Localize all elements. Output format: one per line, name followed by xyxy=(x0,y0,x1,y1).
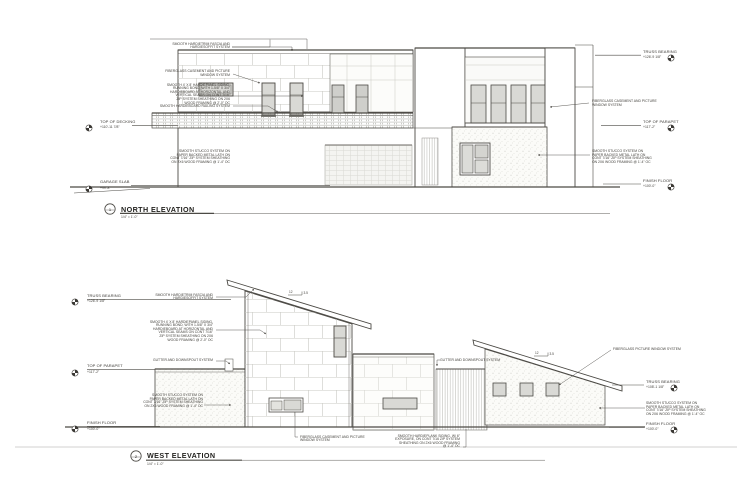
west-main-roof-slope-run: 12 xyxy=(289,290,293,294)
level-datum-icon xyxy=(70,421,80,431)
level-datum-icon xyxy=(669,380,679,390)
north-window-right-note: FIBERGLASS CASEMENT AND PICTURE WINDOW S… xyxy=(592,100,657,107)
north-elevation-title: NORTH ELEVATION xyxy=(121,205,195,214)
north-tower-right xyxy=(545,45,593,187)
level-datum-icon xyxy=(666,50,676,60)
west-main-volume xyxy=(245,291,352,427)
west-truss-bearing-left-elev: +126'-9 1/8" xyxy=(87,300,105,303)
west-finish-floor-left-label: FINISH FLOOR xyxy=(87,421,116,425)
west-mid-section xyxy=(353,354,434,430)
north-truss-bearing-elev: +126'-9 1/8" xyxy=(643,56,661,59)
north-top-of-decking-label: TOP OF DECKING xyxy=(100,120,135,124)
level-datum-icon xyxy=(70,365,80,375)
west-siding-bay xyxy=(436,369,487,430)
west-fascia-note: SMOOTH HARDIETRIM FASCIA AND HARDIESOFFI… xyxy=(83,294,213,301)
north-detail-number: 1 xyxy=(105,207,115,212)
north-garage-slab-label: GARAGE SLAB xyxy=(100,180,130,184)
north-finish-floor-elev: +100'-0" xyxy=(643,185,656,188)
north-elevation-scale: 1/4" = 1'-0" xyxy=(121,215,138,219)
north-garage-slab-elev: +99'-8" xyxy=(100,187,111,190)
west-top-of-parapet-elev: +117'-2" xyxy=(87,371,99,374)
west-wing-roof-slope-rise: 3.5 xyxy=(550,352,554,356)
west-main-roof-slope-rise: 3.5 xyxy=(304,291,308,295)
level-datum-icon xyxy=(84,181,94,191)
level-datum-icon xyxy=(669,422,679,432)
north-top-of-decking-elev: +110'-11 7/8" xyxy=(100,126,120,129)
level-datum-icon xyxy=(666,120,676,130)
west-truss-bearing-right-elev: +108'-1 1/8" xyxy=(646,386,664,389)
north-top-of-parapet-elev: +117'-2" xyxy=(643,126,655,129)
north-stucco-right-note: SMOOTH STUCCO SYSTEM ON PAPER BACKED MET… xyxy=(592,150,652,165)
level-datum-icon xyxy=(70,294,80,304)
north-deck-railing xyxy=(152,113,413,128)
north-ground-line xyxy=(70,187,620,193)
west-elevation-title: WEST ELEVATION xyxy=(147,451,215,460)
north-stucco-left-note: SMOOTH STUCCO SYSTEM ON PAPER BACKED MET… xyxy=(100,150,230,165)
north-elevation-drawing xyxy=(70,39,641,214)
north-fascia-note: SMOOTH HARDIETRIM FASCIA AND HARDIESOFFI… xyxy=(100,43,230,50)
west-wing-roof-slope-run: 12 xyxy=(535,351,539,355)
west-finish-floor-right-elev: +100'-0" xyxy=(646,428,659,431)
west-picture-window-note: FIBERGLASS PICTURE WINDOW SYSTEM xyxy=(613,348,681,352)
west-stucco-left-note: SMOOTH STUCCO SYSTEM ON PAPER BACKED MET… xyxy=(73,394,203,409)
west-top-of-parapet-label: TOP OF PARAPET xyxy=(87,364,123,368)
west-gutter-left-note: GUTTER AND DOWNSPOUT SYSTEM xyxy=(83,359,213,363)
west-plank-siding-note: SMOOTH HARDIEPLANK SIDING, W/ 6" EXPOSUR… xyxy=(330,435,460,450)
west-wing-wall xyxy=(485,349,605,425)
west-elevation-scale: 1/4" = 1'-0" xyxy=(147,462,164,466)
level-datum-icon xyxy=(84,120,94,130)
north-panel-siding-note: SMOOTH 4' X 8' HARDIEPANEL SIDING, RUNNI… xyxy=(100,84,230,106)
north-window-upper-note: FIBERGLASS CASEMENT AND PICTURE WINDOW S… xyxy=(100,70,230,77)
north-lower-level xyxy=(178,127,547,187)
level-datum-icon xyxy=(666,179,676,189)
north-railing-note: SMOOTH HARDIEBOARD RAILING SYSTEM xyxy=(100,105,230,109)
west-gutter-right-note: GUTTER AND DOWNSPOUT SYSTEM xyxy=(440,359,500,363)
drawing-sheet: SMOOTH HARDIETRIM FASCIA AND HARDIESOFFI… xyxy=(0,0,750,500)
west-finish-floor-left-elev: +100'-0" xyxy=(87,428,100,431)
west-detail-number: 2 xyxy=(131,454,141,459)
west-stucco-right-note: SMOOTH STUCCO SYSTEM ON PAPER BACKED MET… xyxy=(646,402,706,417)
west-panel-siding-note: SMOOTH 4' X 8' HARDIEPANEL SIDING, RUNNI… xyxy=(83,321,213,343)
